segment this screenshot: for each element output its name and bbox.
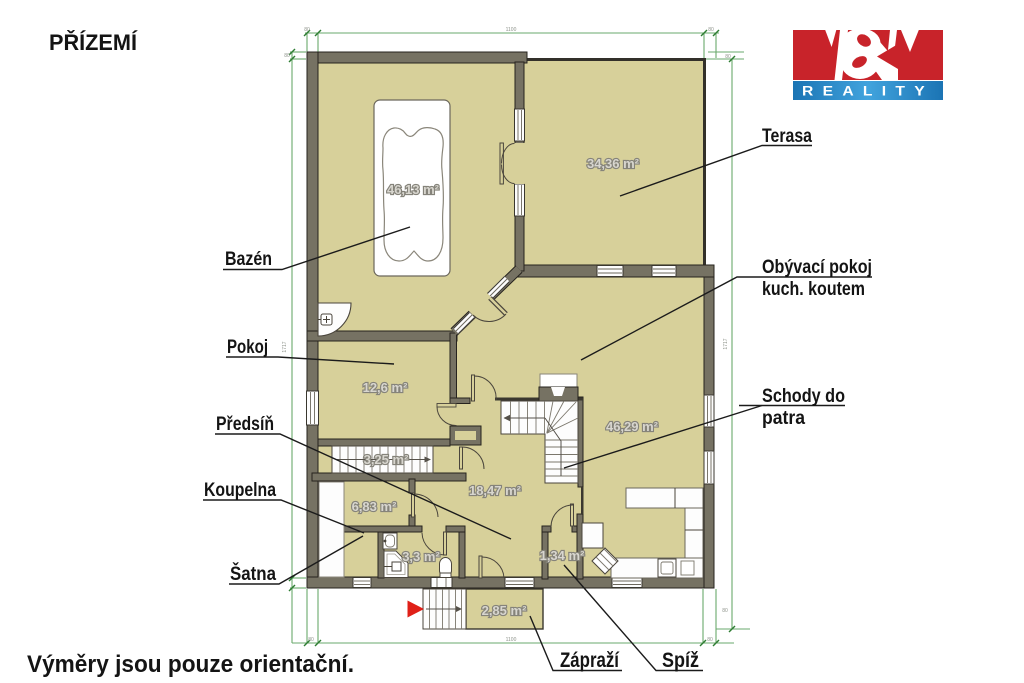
svg-text:Šatna: Šatna (230, 563, 276, 585)
svg-text:1717: 1717 (282, 341, 288, 352)
svg-text:patra: patra (762, 408, 805, 429)
svg-text:34,36 m²: 34,36 m² (587, 156, 640, 171)
svg-text:80: 80 (725, 54, 731, 60)
svg-text:1100: 1100 (506, 27, 517, 33)
svg-text:18,47 m²: 18,47 m² (469, 483, 522, 498)
svg-text:REALITY: REALITY (802, 84, 934, 99)
svg-text:3,25 m²: 3,25 m² (364, 452, 409, 467)
svg-text:80: 80 (722, 608, 728, 614)
svg-text:Výměry jsou pouze orientační.: Výměry jsou pouze orientační. (27, 651, 354, 678)
svg-text:80: 80 (708, 27, 714, 33)
svg-text:6,83 m²: 6,83 m² (352, 499, 397, 514)
svg-text:Koupelna: Koupelna (204, 480, 276, 501)
svg-text:12,6 m²: 12,6 m² (363, 380, 408, 395)
svg-text:46,29 m²: 46,29 m² (606, 419, 659, 434)
svg-text:2,85 m²: 2,85 m² (482, 603, 527, 618)
svg-text:Schody do: Schody do (762, 386, 845, 407)
svg-text:80: 80 (707, 637, 713, 643)
svg-text:Terasa: Terasa (762, 126, 812, 147)
svg-text:kuch. koutem: kuch. koutem (762, 279, 865, 300)
svg-text:1717: 1717 (723, 338, 729, 349)
svg-text:Spíž: Spíž (662, 649, 699, 672)
svg-text:80: 80 (308, 637, 314, 643)
svg-text:Předsíň: Předsíň (216, 414, 274, 435)
svg-text:80: 80 (304, 27, 310, 33)
svg-text:Obývací pokoj: Obývací pokoj (762, 257, 872, 278)
svg-text:Pokoj: Pokoj (227, 337, 268, 358)
svg-text:Bazén: Bazén (225, 249, 272, 270)
svg-text:80: 80 (284, 53, 290, 59)
svg-text:Zápraží: Zápraží (560, 649, 620, 672)
svg-text:PŘÍZEMÍ: PŘÍZEMÍ (49, 30, 138, 55)
svg-text:3,3 m²: 3,3 m² (402, 549, 440, 564)
svg-text:1100: 1100 (506, 637, 517, 643)
svg-text:46,13 m²: 46,13 m² (387, 182, 440, 197)
svg-text:1,34 m²: 1,34 m² (540, 548, 585, 563)
